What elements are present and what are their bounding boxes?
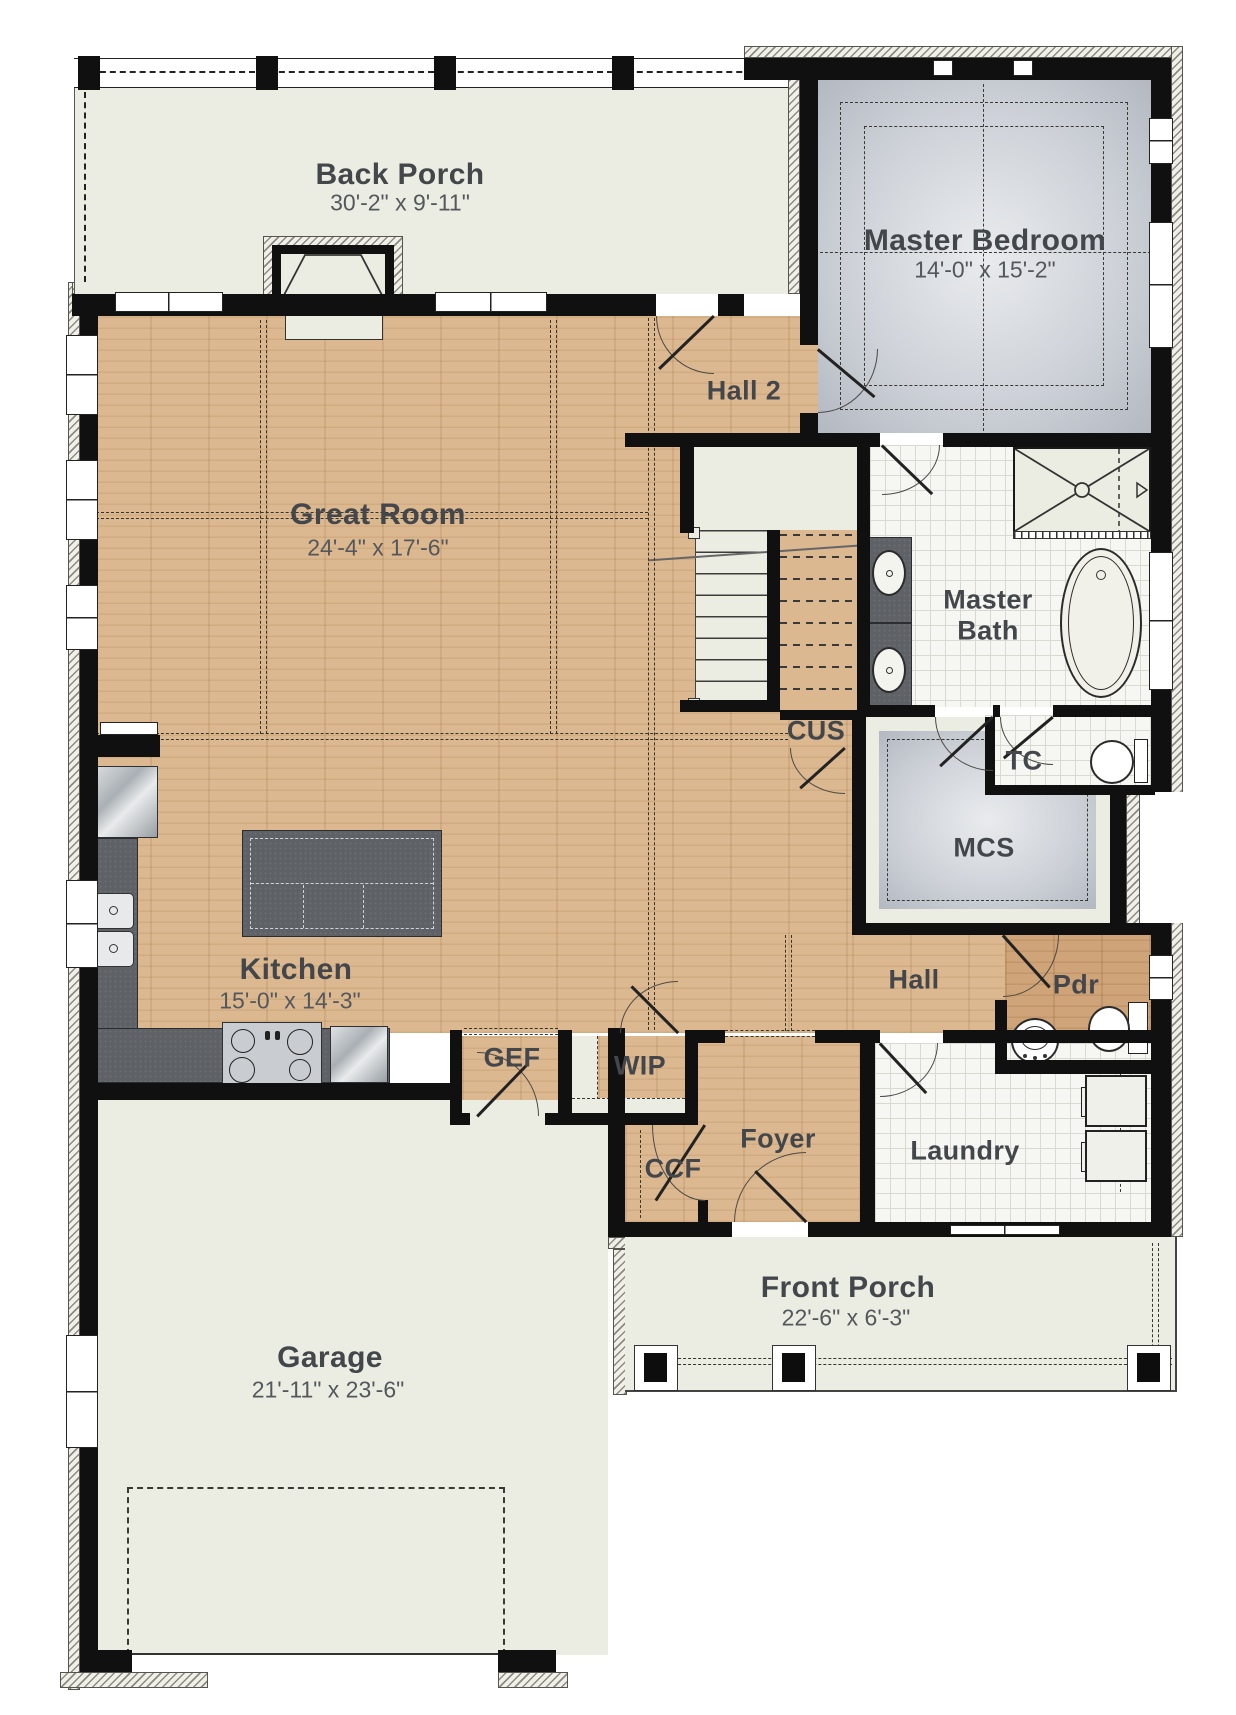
window-pdr xyxy=(1149,955,1173,1000)
wall-gef-bottom-1 xyxy=(450,1113,470,1125)
window-left-1 xyxy=(66,335,98,415)
vanity-divider xyxy=(867,622,911,624)
dishwasher xyxy=(330,1026,388,1083)
master-bath-label-1: Master xyxy=(943,587,1032,614)
burner-1 xyxy=(231,1029,255,1053)
bathtub xyxy=(1060,548,1142,698)
wall-gef-left xyxy=(450,1030,462,1125)
kitchen-label: Kitchen xyxy=(240,955,353,985)
bedroom-post-1 xyxy=(933,60,953,76)
window-greatroom-top-1 xyxy=(115,292,223,312)
washer xyxy=(1085,1075,1147,1127)
wall-pdr-bottom xyxy=(995,1060,1151,1074)
wall-foyer-top-2 xyxy=(815,1030,860,1043)
wall-garage-top xyxy=(80,1083,452,1100)
wall-front-1 xyxy=(608,1222,732,1237)
back-porch-label: Back Porch xyxy=(315,160,484,190)
front-porch-dims: 22'-6" x 6'-3" xyxy=(782,1307,911,1330)
hatch-bedroom-left xyxy=(788,58,800,294)
laundry-label: Laundry xyxy=(910,1138,1019,1165)
window-bedroom-right-1 xyxy=(1149,118,1173,164)
front-porch-column-3-core xyxy=(1137,1353,1160,1382)
stove-knob-1 xyxy=(265,1031,270,1040)
kitchen-beam-h xyxy=(96,733,788,740)
great-room-dims: 24'-4" x 17'-6" xyxy=(307,537,448,560)
kitchen-buffet xyxy=(100,722,158,735)
kitchen-sink xyxy=(94,891,136,971)
back-porch-edge-dashed xyxy=(84,92,86,282)
dryer xyxy=(1085,1130,1147,1182)
wall-mcs-top-2 xyxy=(993,705,1000,717)
dryer-knob xyxy=(1081,1142,1086,1172)
pdr-toilet-bowl xyxy=(1088,1006,1130,1052)
shower-glass-lines xyxy=(1015,449,1149,531)
fireplace-firebox-lines xyxy=(281,253,385,299)
back-porch-rail xyxy=(74,58,788,88)
great-room-label: Great Room xyxy=(290,500,466,530)
burner-3 xyxy=(229,1057,255,1083)
hall2-opening-beam xyxy=(648,318,655,1030)
pdr-toilet-tank xyxy=(1128,1002,1148,1054)
mcs-notch-exterior xyxy=(1140,792,1236,923)
front-porch-edge-bottom xyxy=(625,1390,1177,1392)
cus-label: CUS xyxy=(787,718,845,745)
sink-drain-top xyxy=(109,906,118,915)
wall-gef-right xyxy=(558,1030,572,1125)
wall-stair-left xyxy=(680,443,694,533)
wall-bedroom-bottom-1 xyxy=(625,433,880,447)
garage-label: Garage xyxy=(277,1343,383,1373)
wall-tc-bottom xyxy=(985,785,1155,795)
wall-mcs-right xyxy=(1110,790,1126,930)
wall-stair-bottom-1 xyxy=(680,700,780,712)
wall-laundry-top-1 xyxy=(875,1030,880,1043)
porch-column-3 xyxy=(434,56,456,90)
hatch-bedroom-top xyxy=(744,46,1172,58)
wall-tc-top xyxy=(1053,705,1151,717)
island-divider-v1 xyxy=(303,885,304,928)
shower xyxy=(1013,447,1151,533)
ccf-shelf-line xyxy=(640,1130,641,1218)
porch-column-2 xyxy=(256,56,278,90)
mcs-label: MCS xyxy=(953,835,1014,862)
master-bedroom-dims: 14'-0" x 15'-2" xyxy=(914,259,1055,282)
fireplace-hearth xyxy=(285,314,383,340)
wall-wip-bottom xyxy=(558,1113,698,1125)
hatch-mcs-right xyxy=(1126,790,1140,930)
window-garage xyxy=(66,1335,98,1448)
gef-label: GEF xyxy=(484,1045,541,1072)
window-left-2 xyxy=(66,460,98,540)
garage-door-marker xyxy=(127,1487,505,1655)
island-divider-h xyxy=(251,883,433,884)
tc-toilet-bowl xyxy=(1090,740,1134,784)
front-porch-column-1 xyxy=(634,1345,678,1391)
washer-knob xyxy=(1081,1087,1086,1117)
hatch-garage-bottom-right xyxy=(498,1672,568,1688)
wall-laundry-top-2 xyxy=(943,1030,1151,1043)
pdr-label: Pdr xyxy=(1053,972,1099,999)
pdr-sink-dot3 xyxy=(1043,1054,1047,1058)
vanity-sink-bottom xyxy=(872,647,906,693)
island-divider-v2 xyxy=(363,885,364,928)
front-porch-column-2-core xyxy=(782,1353,805,1382)
master-bath-label-2: Bath xyxy=(957,618,1019,645)
stove-knob-2 xyxy=(275,1031,280,1040)
back-porch-dims: 30'-2" x 9'-11" xyxy=(330,192,470,215)
vanity-sink-top-drain xyxy=(886,570,893,577)
refrigerator xyxy=(90,766,158,838)
wall-ccf-stub xyxy=(698,1200,708,1222)
front-porch-column-1-core xyxy=(644,1353,667,1382)
window-bath xyxy=(1149,552,1173,690)
garage-dims: 21'-11" x 23'-6" xyxy=(252,1379,405,1402)
wall-bath-left xyxy=(857,443,870,717)
range-stove xyxy=(222,1022,322,1084)
window-kitchen xyxy=(66,880,98,968)
wall-garage-bottom-right xyxy=(498,1650,556,1672)
wall-mcs-left xyxy=(852,717,866,923)
wall-bedroom-bottom-2 xyxy=(943,433,1167,447)
porch-column-1 xyxy=(78,56,100,90)
foyer-label: Foyer xyxy=(740,1126,816,1153)
ccf-label: CCF xyxy=(645,1156,702,1183)
front-porch-beam xyxy=(648,1358,1172,1365)
front-porch-column-3 xyxy=(1127,1345,1171,1391)
tc-toilet-tank xyxy=(1134,739,1148,783)
gef-opening-beam xyxy=(464,1028,558,1035)
window-left-3 xyxy=(66,585,98,650)
kitchen-island xyxy=(242,830,442,937)
burner-4 xyxy=(289,1059,311,1081)
floor-plan: Back Porch 30'-2" x 9'-11" Master Bedroo… xyxy=(0,0,1236,1715)
wall-stair-mid xyxy=(767,530,780,712)
pdr-sink-dot1 xyxy=(1023,1054,1027,1058)
stair-treads-dashed xyxy=(780,530,857,712)
wall-wip-right xyxy=(685,1030,698,1125)
vanity-sink-bottom-drain xyxy=(886,667,893,674)
back-porch-rail-dash xyxy=(80,71,782,73)
shower-door-track xyxy=(1013,531,1151,539)
hatch-garage-bottom-left xyxy=(60,1672,208,1688)
wall-top-greatroom-2 xyxy=(718,294,744,316)
window-laundry xyxy=(950,1225,1060,1235)
wall-laundry-left xyxy=(860,1030,875,1237)
window-bedroom-right-2 xyxy=(1149,222,1173,348)
master-bedroom-label: Master Bedroom xyxy=(864,226,1106,256)
front-porch-label: Front Porch xyxy=(761,1273,935,1303)
wall-bedroom-left-upper xyxy=(800,58,818,345)
front-porch-edge-right xyxy=(1175,1237,1177,1392)
wall-mcs-bottom xyxy=(852,923,1151,935)
garage-opening-line xyxy=(132,1653,498,1655)
stair-landing xyxy=(693,447,857,530)
foyer-opening-beam xyxy=(725,1030,815,1037)
hall-opening-beam xyxy=(785,935,792,1031)
wall-garage-bottom-left xyxy=(80,1650,132,1672)
sink-drain-bottom xyxy=(109,944,118,953)
wip-label: WIP xyxy=(614,1053,666,1080)
great-room-beam-v1 xyxy=(260,320,267,734)
wall-foyer-top-1 xyxy=(698,1030,725,1043)
burner-2 xyxy=(287,1029,313,1055)
tc-label: TC xyxy=(1006,748,1043,775)
bathtub-faucet xyxy=(1096,570,1106,580)
great-room-beam-v2 xyxy=(550,320,557,734)
kitchen-dims: 15'-0" x 14'-3" xyxy=(219,990,360,1013)
wall-mcs-top-1 xyxy=(857,705,935,717)
vanity-sink-top xyxy=(872,550,906,596)
hall2-label: Hall 2 xyxy=(707,378,781,405)
porch-column-4 xyxy=(612,56,634,90)
kitchen-wall-stub xyxy=(88,735,160,757)
window-greatroom-top-2 xyxy=(435,292,547,312)
front-porch-column-2 xyxy=(772,1345,816,1391)
hall-label: Hall xyxy=(888,967,939,994)
bedroom-post-2 xyxy=(1013,60,1033,76)
